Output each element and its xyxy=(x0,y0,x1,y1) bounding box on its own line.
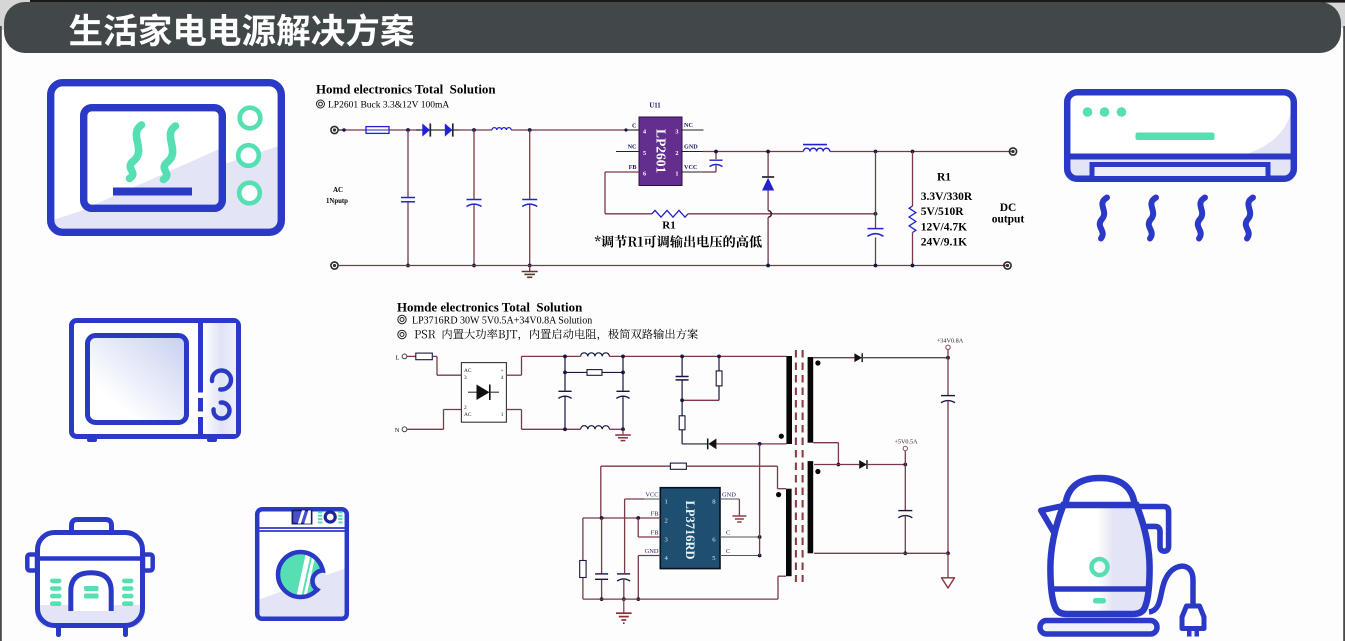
svg-text:NC: NC xyxy=(628,144,637,151)
svg-text:AC: AC xyxy=(333,186,343,194)
svg-text:6: 6 xyxy=(643,171,646,178)
svg-text:1: 1 xyxy=(501,412,504,418)
svg-text:NC: NC xyxy=(684,122,693,129)
svg-text:4: 4 xyxy=(643,129,646,136)
svg-text:R1: R1 xyxy=(937,172,951,184)
svg-text:GND: GND xyxy=(722,492,736,499)
svg-text:3.3V/330R: 3.3V/330R xyxy=(921,191,973,203)
svg-text:LP3716RD: LP3716RD xyxy=(683,500,697,559)
svg-text:FB: FB xyxy=(651,511,659,518)
svg-text:+: + xyxy=(500,368,503,374)
svg-text:C: C xyxy=(726,530,730,537)
svg-text:2: 2 xyxy=(464,405,467,411)
svg-text:C: C xyxy=(726,548,730,555)
svg-text:L: L xyxy=(396,354,400,361)
svg-text:N: N xyxy=(395,427,400,434)
svg-text:5: 5 xyxy=(643,150,646,157)
svg-text:+5V0.5A: +5V0.5A xyxy=(894,439,918,446)
svg-text:R1: R1 xyxy=(662,220,675,232)
svg-text:U11: U11 xyxy=(649,103,661,110)
svg-text:VCC: VCC xyxy=(645,492,658,499)
svg-text:1: 1 xyxy=(665,499,668,506)
svg-text:VCC: VCC xyxy=(684,164,697,171)
svg-text:4: 4 xyxy=(501,375,504,381)
svg-text:5V/510R: 5V/510R xyxy=(921,206,965,218)
svg-text:+34V0.8A: +34V0.8A xyxy=(937,338,964,345)
svg-text:C: C xyxy=(632,123,636,130)
svg-text:3: 3 xyxy=(464,375,467,381)
svg-text:2: 2 xyxy=(675,150,678,157)
svg-text:AC: AC xyxy=(464,368,472,374)
svg-text:1Nputp: 1Nputp xyxy=(326,198,348,205)
svg-text:DC: DC xyxy=(1000,202,1017,214)
svg-text:GND: GND xyxy=(684,144,698,151)
svg-text:1: 1 xyxy=(675,171,678,178)
svg-text:24V/9.1K: 24V/9.1K xyxy=(921,236,967,248)
svg-text:LP3716RD 30W 5V0.5A+34V0.8A So: LP3716RD 30W 5V0.5A+34V0.8A Solution xyxy=(412,316,592,327)
svg-text:FB: FB xyxy=(651,530,659,537)
svg-text:LP2601: LP2601 xyxy=(654,129,669,174)
svg-text:FB: FB xyxy=(629,164,637,171)
svg-text:3: 3 xyxy=(675,129,678,136)
svg-text:12V/4.7K: 12V/4.7K xyxy=(921,222,967,234)
svg-text:AC: AC xyxy=(464,412,472,418)
svg-text:output: output xyxy=(992,214,1025,226)
svg-text:GND: GND xyxy=(645,548,659,555)
svg-text:Homde electronics Total Solut: Homde electronics Total Solution xyxy=(397,301,582,315)
svg-text:2: 2 xyxy=(665,518,668,525)
svg-text:LP2601 Buck 3.3&12V 100mA: LP2601 Buck 3.3&12V 100mA xyxy=(328,101,449,111)
svg-text:Homd electronics Total Soluti: Homd electronics Total Solution xyxy=(316,83,496,97)
